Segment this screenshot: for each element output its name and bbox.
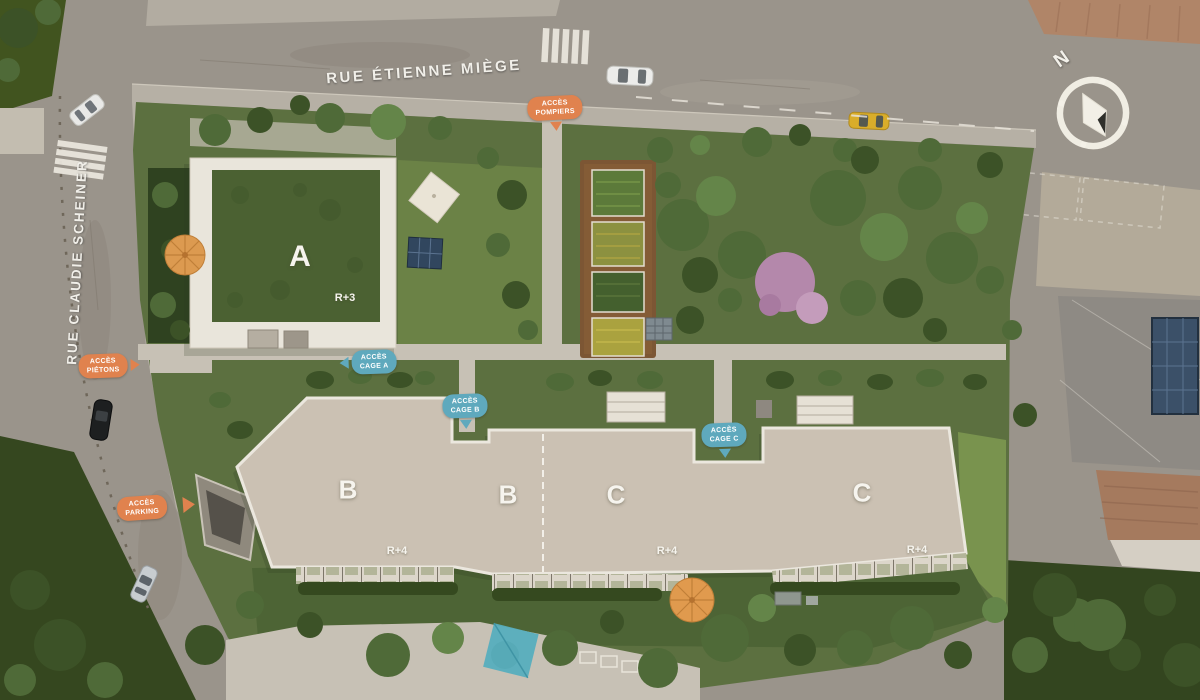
arrow-right-icon bbox=[130, 359, 139, 371]
acces-parking-badge: ACCÈS PARKING bbox=[116, 494, 167, 522]
building-b1-label: B bbox=[339, 475, 358, 506]
arrow-down-icon bbox=[718, 449, 730, 458]
acces-cage-a-badge: ACCÈS CAGE A bbox=[351, 349, 397, 375]
car-yellow bbox=[849, 112, 890, 130]
building-a-floors: R+3 bbox=[335, 292, 356, 304]
arrow-down-icon bbox=[459, 420, 471, 429]
acces-cage-b-badge: ACCÈS CAGE B bbox=[442, 393, 488, 419]
building-c2-floors: R+4 bbox=[907, 544, 928, 556]
acces-cage-c-badge: ACCÈS CAGE C bbox=[701, 422, 747, 448]
acces-pompiers-badge: ACCÈS POMPIERS bbox=[527, 94, 584, 121]
building-c1-label: C bbox=[607, 480, 626, 511]
arrow-down-icon bbox=[550, 122, 562, 132]
arrow-left-icon bbox=[339, 357, 348, 369]
site-plan: .t1{fill:#3c5227}.t2{fill:#4f6a38}.t3{fi… bbox=[0, 0, 1200, 700]
building-a-label: A bbox=[289, 240, 311, 274]
site-plan-rendering: .t1{fill:#3c5227}.t2{fill:#4f6a38}.t3{fi… bbox=[0, 0, 1200, 700]
acces-pietons-badge: ACCÈS PIÉTONS bbox=[78, 353, 128, 379]
building-c2-label: C bbox=[853, 478, 872, 509]
building-b2-label: B bbox=[499, 480, 518, 511]
arrow-right-icon bbox=[182, 496, 195, 513]
umbrella-2 bbox=[670, 578, 714, 622]
solar-panel bbox=[407, 237, 443, 269]
building-c1-floors: R+4 bbox=[657, 545, 678, 557]
umbrella-1 bbox=[165, 235, 205, 275]
building-b1-floors: R+4 bbox=[387, 545, 408, 557]
car-white-top bbox=[607, 66, 654, 86]
